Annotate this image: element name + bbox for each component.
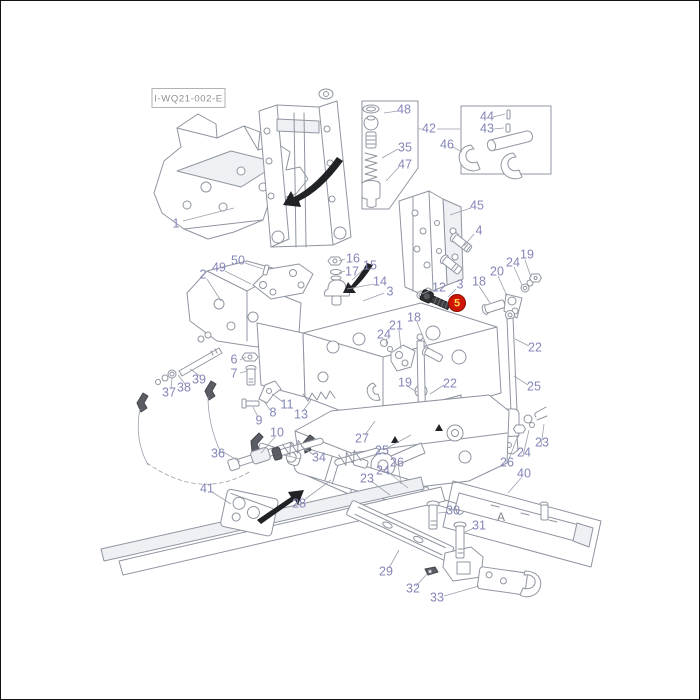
highlight-badge-number[interactable]: 5 (454, 297, 460, 309)
callout-38[interactable]: 38 (177, 380, 191, 394)
callout-29[interactable]: 29 (379, 564, 393, 578)
callout-8[interactable]: 8 (270, 405, 277, 419)
callout-12[interactable]: 12 (432, 280, 446, 294)
callout-19[interactable]: 19 (398, 375, 412, 389)
highlight-layer: 5 (449, 295, 466, 312)
highlighted-callout-5[interactable]: 5 (449, 295, 466, 312)
reference-letter-A: A (497, 510, 505, 524)
callout-49[interactable]: 49 (212, 260, 226, 274)
callout-23[interactable]: 23 (535, 435, 549, 449)
callout-33[interactable]: 33 (430, 590, 444, 604)
callout-36[interactable]: 36 (211, 446, 225, 460)
callout-13[interactable]: 13 (294, 407, 308, 421)
callout-23[interactable]: 23 (360, 471, 374, 485)
callout-34[interactable]: 34 (312, 450, 326, 464)
callout-3[interactable]: 3 (387, 284, 394, 298)
callout-18[interactable]: 18 (407, 310, 421, 324)
callout-35[interactable]: 35 (398, 140, 412, 154)
callout-3[interactable]: 3 (457, 277, 464, 291)
callout-10[interactable]: 10 (270, 425, 284, 439)
callout-45[interactable]: 45 (470, 198, 484, 212)
exploded-view-artwork (101, 89, 601, 597)
callout-20[interactable]: 20 (490, 264, 504, 278)
callout-14[interactable]: 14 (373, 274, 387, 288)
callout-31[interactable]: 31 (472, 518, 486, 532)
exploded-parts-diagram: I-WQ21-002-E 124950161715143123182024194… (1, 1, 699, 699)
callout-11[interactable]: 11 (281, 397, 294, 411)
parts-diagram-page: I-WQ21-002-E 124950161715143123182024194… (0, 0, 700, 700)
callout-28[interactable]: 28 (292, 496, 306, 510)
pivot-pin-set (156, 332, 223, 385)
callout-22[interactable]: 22 (528, 340, 542, 354)
callout-46[interactable]: 46 (440, 137, 454, 151)
callout-16[interactable]: 16 (346, 251, 360, 265)
callout-18[interactable]: 18 (472, 274, 486, 288)
clip-32 (425, 567, 438, 575)
callout-26[interactable]: 26 (500, 455, 514, 469)
callout-25[interactable]: 25 (375, 443, 389, 457)
callout-47[interactable]: 47 (398, 157, 412, 171)
callout-24[interactable]: 24 (377, 327, 391, 341)
callout-6[interactable]: 6 (231, 352, 238, 366)
callout-24[interactable]: 24 (517, 445, 531, 459)
callout-2[interactable]: 2 (200, 267, 207, 281)
callout-43[interactable]: 43 (480, 121, 494, 135)
callout-37[interactable]: 37 (162, 385, 176, 399)
callout-4[interactable]: 4 (476, 223, 483, 237)
callout-30[interactable]: 30 (446, 503, 460, 517)
callout-22[interactable]: 22 (443, 376, 457, 390)
callout-39[interactable]: 39 (192, 372, 206, 386)
callout-42[interactable]: 42 (422, 121, 436, 135)
valve-kit-box (362, 101, 418, 209)
callout-7[interactable]: 7 (231, 366, 238, 380)
callout-27[interactable]: 27 (355, 431, 369, 445)
diagram-code-label: I-WQ21-002-E (154, 94, 222, 105)
callout-1[interactable]: 1 (173, 216, 180, 230)
callout-24[interactable]: 24 (506, 255, 520, 269)
callout-50[interactable]: 50 (231, 253, 245, 267)
callout-32[interactable]: 32 (406, 581, 420, 595)
callout-19[interactable]: 19 (520, 247, 534, 261)
callout-15[interactable]: 15 (363, 258, 377, 272)
anchor-plate (399, 191, 463, 295)
callout-9[interactable]: 9 (256, 413, 263, 427)
hook-kit-box (459, 106, 551, 179)
callout-21[interactable]: 21 (389, 318, 403, 332)
callout-24[interactable]: 24 (376, 463, 390, 477)
diagram-code-box: I-WQ21-002-E (152, 89, 225, 108)
callout-41[interactable]: 41 (200, 481, 214, 495)
callout-17[interactable]: 17 (345, 264, 359, 278)
callout-40[interactable]: 40 (517, 466, 531, 480)
lower-hook (477, 567, 541, 597)
callout-48[interactable]: 48 (397, 102, 411, 116)
callout-26[interactable]: 26 (390, 455, 404, 469)
callout-25[interactable]: 25 (527, 379, 541, 393)
